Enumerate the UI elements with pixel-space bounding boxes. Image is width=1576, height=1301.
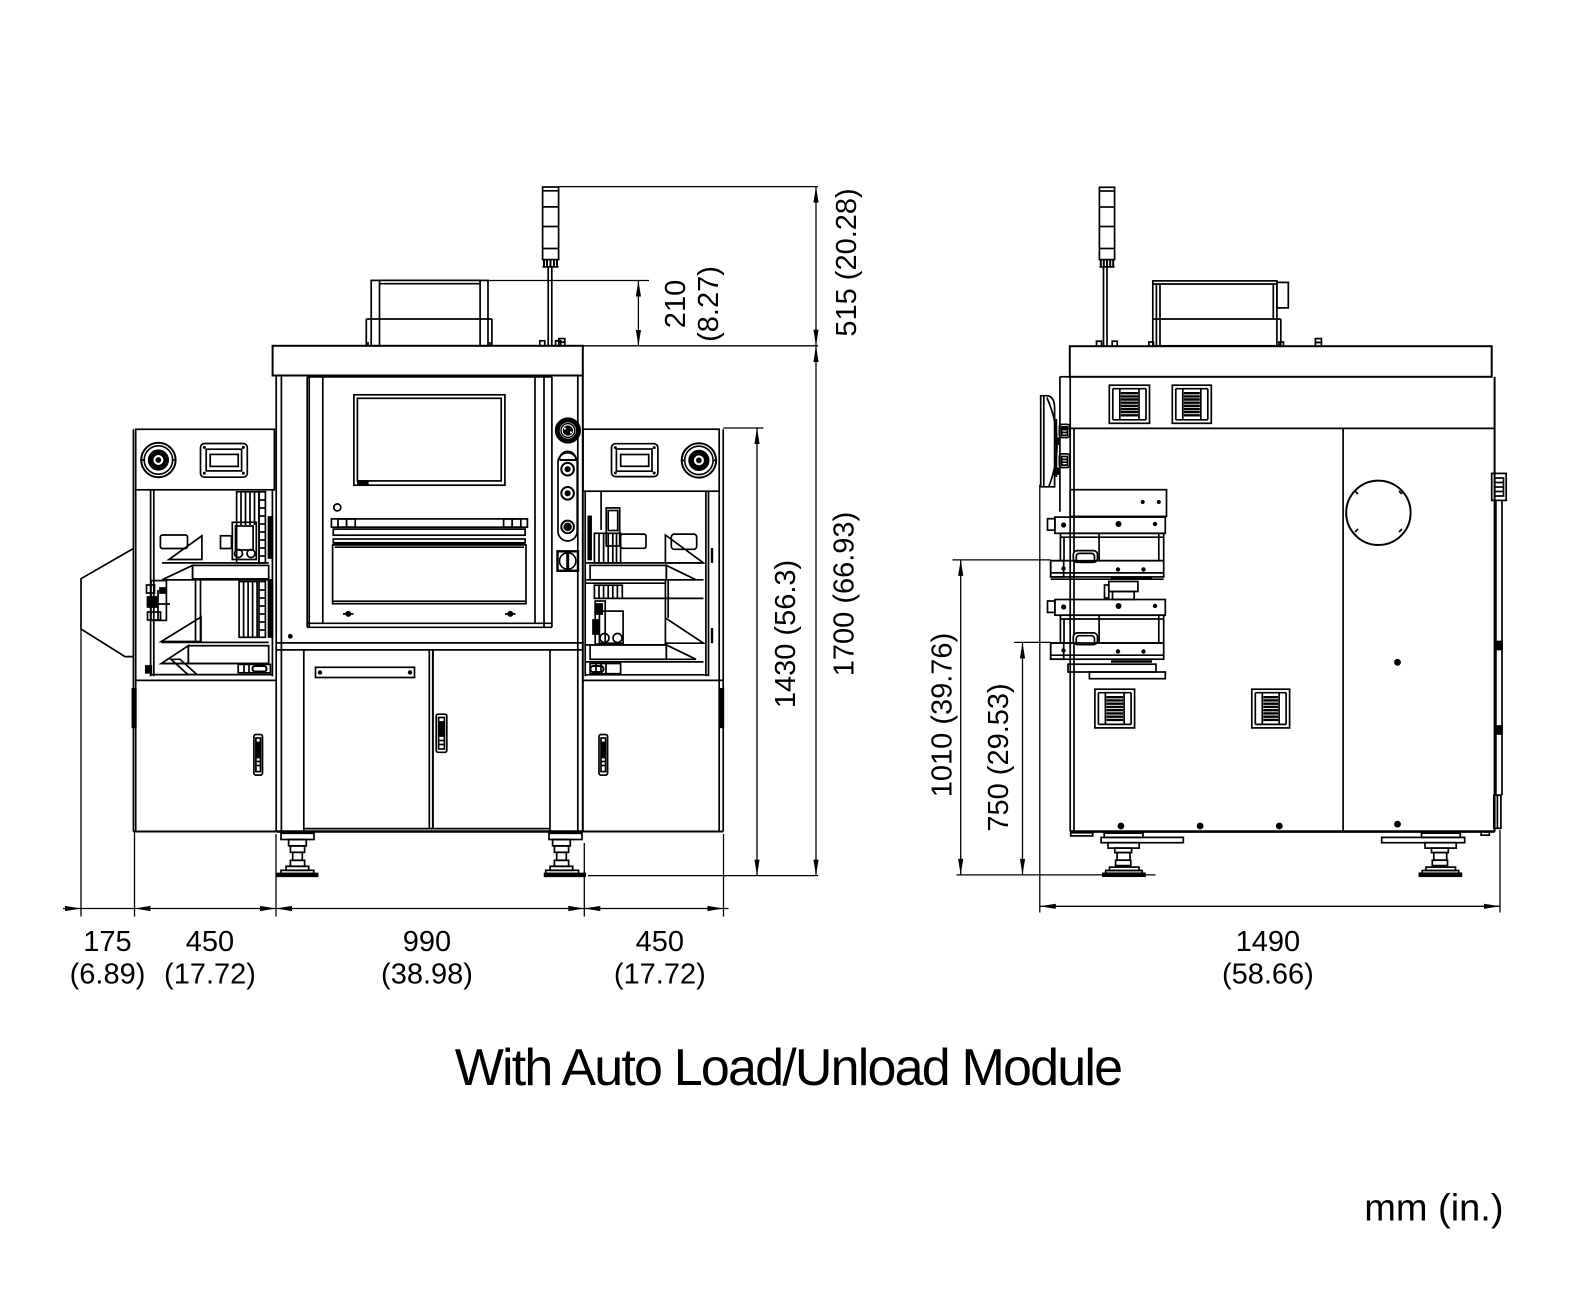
svg-text:(17.72): (17.72) [614,959,706,991]
svg-text:(58.66): (58.66) [1222,959,1314,991]
svg-text:mm (in.): mm (in.) [1364,1188,1503,1230]
svg-text:175: 175 [83,926,131,958]
svg-text:210: 210 [660,280,692,328]
svg-text:With Auto Load/Unload Module: With Auto Load/Unload Module [455,1039,1122,1097]
svg-text:990: 990 [403,926,451,958]
svg-text:(6.89): (6.89) [70,959,146,991]
svg-text:(38.98): (38.98) [381,959,473,991]
svg-text:(17.72): (17.72) [164,959,256,991]
svg-text:1010 (39.76): 1010 (39.76) [927,633,959,797]
svg-text:515 (20.28): 515 (20.28) [831,188,863,336]
svg-text:1490: 1490 [1236,926,1301,958]
svg-text:450: 450 [186,926,234,958]
svg-text:(8.27): (8.27) [693,266,725,342]
svg-text:1700 (66.93): 1700 (66.93) [829,512,861,676]
svg-text:1430 (56.3): 1430 (56.3) [770,560,802,708]
svg-text:450: 450 [636,926,684,958]
svg-text:750 (29.53): 750 (29.53) [983,683,1015,831]
